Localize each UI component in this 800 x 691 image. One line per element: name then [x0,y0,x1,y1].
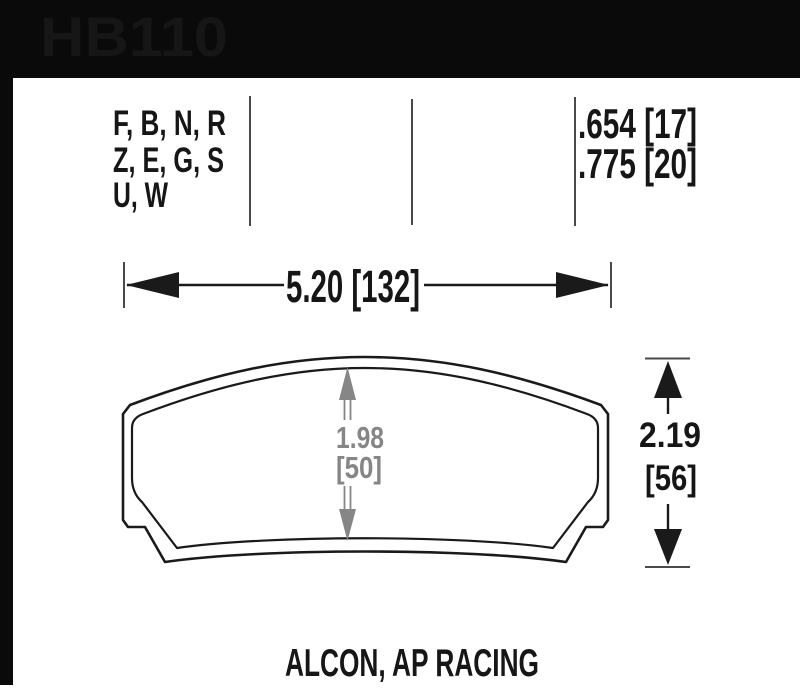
compound-line-3: U, W [113,176,168,215]
compound-codes: F, B, N, R Z, E, G, S U, W [113,104,226,215]
part-number: HB110 [40,5,228,68]
width-dim-arrow-right-icon [556,272,609,298]
overall-height-dimension: 2.19 [56] [639,359,701,568]
center-dim-arrow-down-icon [339,509,356,541]
center-dim-arrow-up-icon [339,367,356,400]
height-dim-value-mm: [56] [645,459,697,498]
thickness-values: .654 [17] .775 [20] [578,100,697,187]
spec-diagram: HB110 F, B, N, R Z, E, G, S U, W .654 [1… [0,0,800,691]
compound-line-1: F, B, N, R [113,104,226,143]
caliper-caption: ALCON, AP RACING [285,642,539,685]
brake-pad-spec-page: HB110 F, B, N, R Z, E, G, S U, W .654 [1… [0,0,800,691]
spec-column-dividers [250,96,575,226]
height-dim-arrow-down-icon [654,529,682,565]
height-dim-arrow-up-icon [654,361,682,398]
height-dim-value-in: 2.19 [639,416,701,455]
compound-line-2: Z, E, G, S [113,141,224,180]
center-height-dimension: 1.98 [50] [336,367,384,541]
width-dimension: 5.20 [132] [124,261,611,312]
left-edge-strip [0,78,13,685]
width-dim-value: 5.20 [132] [286,261,420,312]
center-dim-value-mm: [50] [336,450,382,485]
thickness-line-2: .775 [20] [578,140,697,187]
width-dim-arrow-left-icon [126,272,179,298]
